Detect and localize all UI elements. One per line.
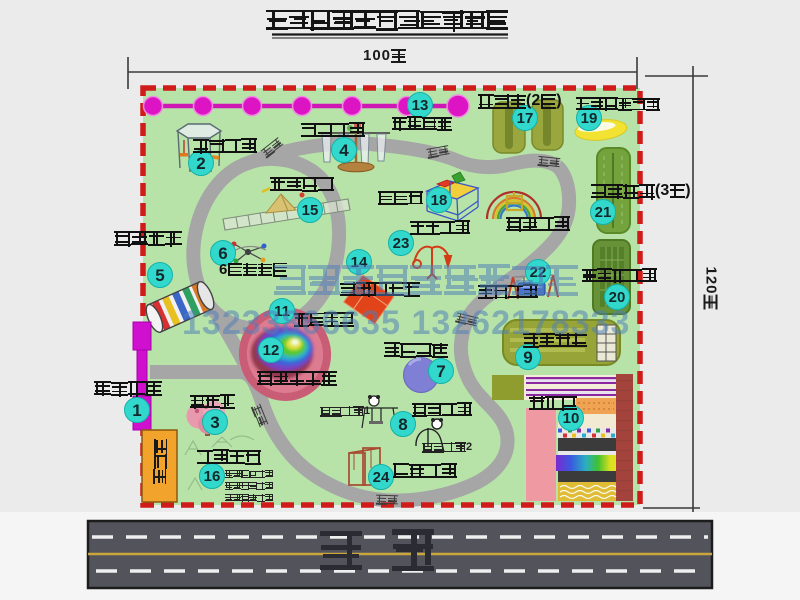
svg-text:23: 23 [393, 235, 410, 252]
svg-text:21: 21 [595, 204, 612, 221]
svg-text:19: 19 [581, 110, 598, 127]
svg-text:12: 12 [263, 342, 280, 359]
svg-text:5: 5 [155, 266, 164, 285]
svg-text:16: 16 [204, 468, 221, 485]
svg-text:13: 13 [412, 97, 429, 114]
svg-text:10: 10 [563, 410, 580, 427]
svg-text:8: 8 [398, 415, 407, 434]
svg-text:1: 1 [132, 401, 141, 420]
svg-text:2: 2 [196, 154, 205, 173]
svg-text:15: 15 [302, 202, 319, 219]
svg-text:9: 9 [523, 348, 532, 367]
svg-text:17: 17 [517, 110, 534, 127]
svg-text:3: 3 [210, 413, 219, 432]
svg-text:4: 4 [339, 141, 349, 160]
svg-text:24: 24 [373, 469, 390, 486]
svg-text:7: 7 [436, 362, 445, 381]
svg-text:18: 18 [431, 192, 448, 209]
